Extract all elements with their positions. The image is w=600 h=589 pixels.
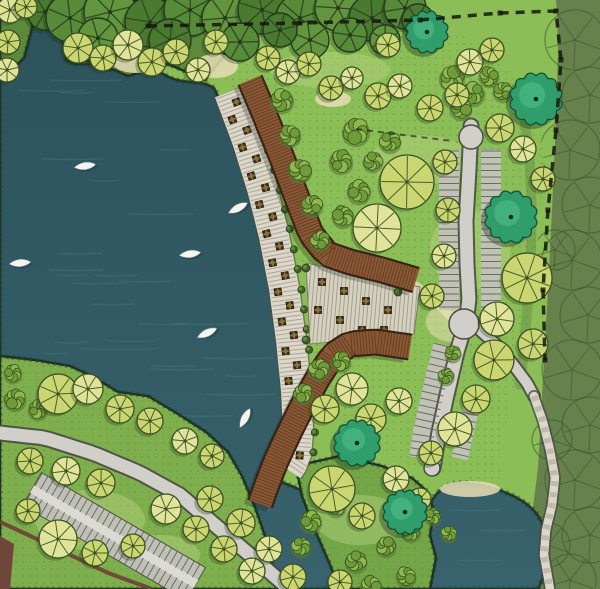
- promenade-shrub-icon: [305, 346, 312, 353]
- plaza-planter: [318, 278, 327, 287]
- promenade-planter: [292, 360, 302, 370]
- plaza-planter: [314, 306, 323, 315]
- promenade-planter: [281, 346, 291, 356]
- promenade-planter: [295, 451, 304, 460]
- promenade-shrub-icon: [300, 306, 307, 313]
- shrub-cluster-icon: [444, 346, 461, 364]
- promenade-planter: [277, 317, 287, 327]
- shrub-cluster-icon: [379, 131, 402, 154]
- plaza-planter: [340, 287, 349, 296]
- plaza-planter: [336, 316, 345, 325]
- shrub-cluster-icon: [437, 369, 454, 387]
- plaza-shrub-icon: [302, 264, 310, 272]
- promenade-planter: [289, 330, 299, 340]
- shrub-cluster-icon: [288, 160, 313, 185]
- promenade-shrub-icon: [310, 449, 317, 456]
- promenade-planter: [285, 300, 295, 310]
- promenade-planter: [273, 287, 283, 297]
- promenade-shrub-icon: [311, 429, 318, 436]
- site-plan-canvas: [0, 0, 600, 589]
- promenade-shrub-icon: [290, 246, 297, 253]
- plaza-planter: [362, 297, 371, 306]
- plaza-planter: [384, 306, 393, 315]
- shrub-cluster-icon: [301, 195, 324, 218]
- promenade-shrub-icon: [298, 286, 305, 293]
- promenade-planter: [284, 376, 294, 386]
- shrub-cluster-icon: [291, 538, 312, 559]
- shrub-cluster-icon: [279, 125, 302, 148]
- plaza-shrub-icon: [302, 336, 310, 344]
- site-plan-svg: [0, 0, 600, 589]
- promenade-shrub-icon: [294, 265, 301, 272]
